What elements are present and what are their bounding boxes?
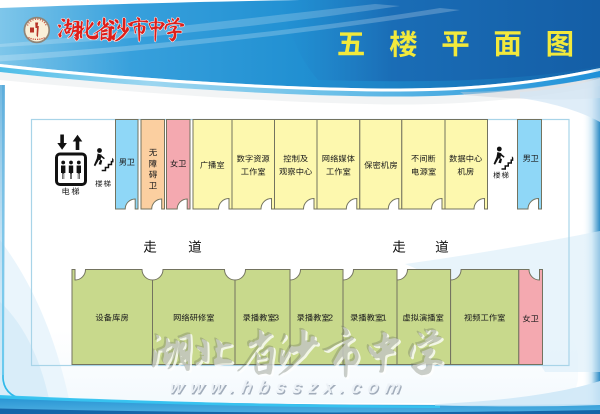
svg-text:3: 3	[274, 313, 279, 323]
svg-text:www.hbsszx.com: www.hbsszx.com	[168, 377, 409, 397]
svg-text:2: 2	[328, 313, 333, 323]
svg-text:1: 1	[382, 313, 387, 323]
